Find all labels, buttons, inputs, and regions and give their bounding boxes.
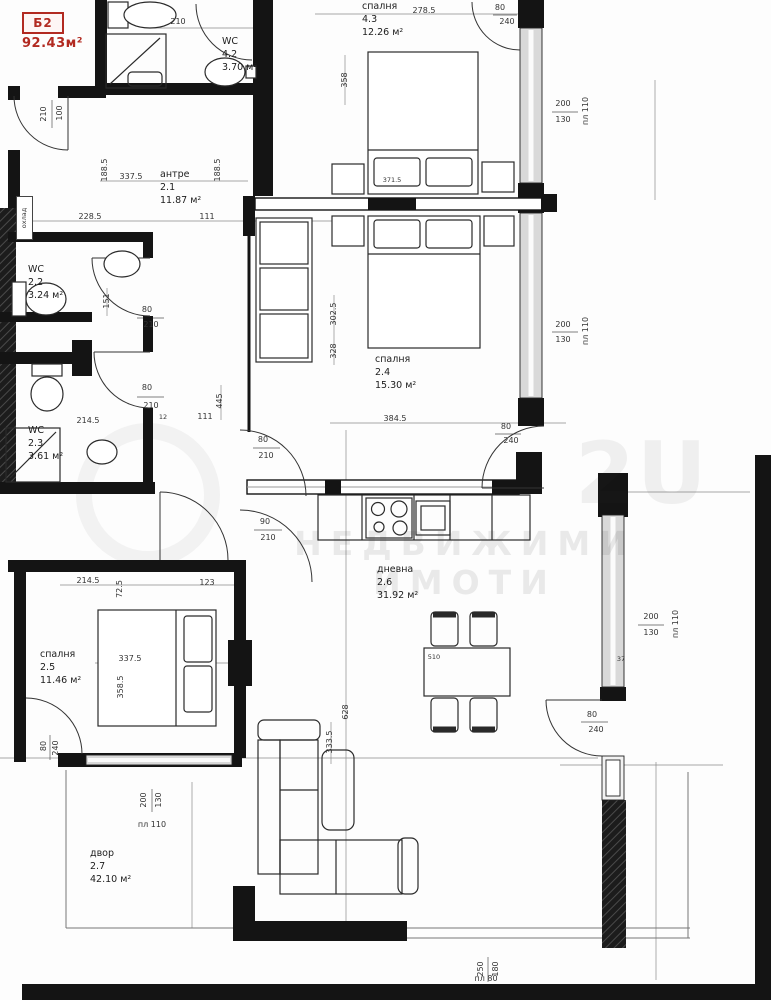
dim-label: 210 bbox=[143, 402, 158, 410]
dim-label: 12 bbox=[159, 413, 167, 421]
dim-label: 210 bbox=[258, 452, 273, 460]
dim-label: 302.5 bbox=[330, 303, 338, 326]
dim-label: 337.5 bbox=[120, 173, 143, 181]
dim-label: 200 bbox=[555, 100, 570, 108]
dim-label: 80 bbox=[587, 711, 597, 719]
dim-label: 240 bbox=[499, 18, 514, 26]
room-area: 31.92 м² bbox=[377, 589, 418, 602]
room-number: 2.7 bbox=[90, 860, 131, 873]
room-area: 3.70 м² bbox=[222, 61, 257, 74]
room-number: 2.6 bbox=[377, 576, 418, 589]
dim-label: 80 bbox=[142, 384, 152, 392]
dim-label: 72.5 bbox=[116, 580, 124, 598]
room-name: антре bbox=[160, 168, 201, 181]
dim-label: 151 bbox=[103, 293, 111, 308]
room-area: 11.46 м² bbox=[40, 674, 81, 687]
dim-label: 228.5 bbox=[79, 213, 102, 221]
dim-label: 328 bbox=[330, 343, 338, 358]
room-number: 2.5 bbox=[40, 661, 81, 674]
room-label-wc42: WC 4.2 3.70 м² bbox=[222, 35, 257, 74]
dim-label: 188.5 bbox=[214, 159, 222, 182]
dim-label: пл 80 bbox=[474, 975, 497, 983]
dim-label: 210 bbox=[170, 18, 185, 26]
room-label-bedroom24: спалня 2.4 15.30 м² bbox=[375, 353, 416, 392]
dim-label: 123 bbox=[199, 579, 214, 587]
room-number: 2.1 bbox=[160, 181, 201, 194]
watermark-text: НЕДВИЖИМИ ИМОТИ bbox=[230, 524, 700, 602]
dim-label: 80 bbox=[258, 436, 268, 444]
room-name: спалня bbox=[362, 0, 403, 13]
room-area: 15.30 м² bbox=[375, 379, 416, 392]
floorplan-page: Б2 92.43м² охлад 2U НЕДВИЖИМИ ИМОТИ WC 4… bbox=[0, 0, 771, 1000]
dim-label: 240 bbox=[52, 740, 60, 755]
room-label-wc22: WC 2.2 3.24 м² bbox=[28, 263, 63, 302]
dim-label: 200 bbox=[555, 321, 570, 329]
room-number: 4.2 bbox=[222, 48, 257, 61]
dim-label: 130 bbox=[555, 116, 570, 124]
cooler-niche: охлад bbox=[16, 196, 33, 240]
room-area: 3.24 м² bbox=[28, 289, 63, 302]
dim-label: 358 bbox=[341, 72, 349, 87]
dim-label: 200 bbox=[140, 792, 148, 807]
room-area: 42.10 м² bbox=[90, 873, 131, 886]
room-area: 3.61 м² bbox=[28, 450, 63, 463]
room-number: 2.4 bbox=[375, 366, 416, 379]
room-label-bedroom43: спалня 4.3 12.26 м² bbox=[362, 0, 403, 39]
room-name: WC bbox=[222, 35, 257, 48]
dim-label: 628 bbox=[342, 704, 350, 719]
dim-label: 210 bbox=[143, 321, 158, 329]
dim-label: 80 bbox=[40, 741, 48, 751]
room-number: 2.3 bbox=[28, 437, 63, 450]
dim-label: пл 110 bbox=[582, 97, 590, 125]
room-name: WC bbox=[28, 424, 63, 437]
room-label-antre21: антре 2.1 11.87 м² bbox=[160, 168, 201, 207]
room-label-yard27: двор 2.7 42.10 м² bbox=[90, 847, 131, 886]
room-area: 12.26 м² bbox=[362, 26, 403, 39]
dim-label: 214.5 bbox=[77, 417, 100, 425]
dim-label: 100 bbox=[56, 105, 64, 120]
dim-label: пл 110 bbox=[672, 610, 680, 638]
room-label-living26: дневна 2.6 31.92 м² bbox=[377, 563, 418, 602]
dim-label: 210 bbox=[40, 106, 48, 121]
dimension-separators bbox=[50, 15, 664, 982]
dim-label: 278.5 bbox=[413, 7, 436, 15]
dim-label: 80 bbox=[495, 4, 505, 12]
dim-label: 130 bbox=[643, 629, 658, 637]
watermark-logo: 2U bbox=[575, 424, 709, 524]
dim-label: 384.5 bbox=[384, 415, 407, 423]
dim-label: 445 bbox=[216, 393, 224, 408]
unit-code: Б2 bbox=[22, 12, 64, 34]
dim-label: 371.5 bbox=[383, 176, 402, 184]
room-area: 11.87 м² bbox=[160, 194, 201, 207]
dim-label: 333.5 bbox=[326, 731, 334, 754]
room-name: спалня bbox=[40, 648, 81, 661]
room-number: 2.2 bbox=[28, 276, 63, 289]
dim-label: 210 bbox=[260, 534, 275, 542]
room-label-wc23: WC 2.3 3.61 м² bbox=[28, 424, 63, 463]
room-label-bedroom25: спалня 2.5 11.46 м² bbox=[40, 648, 81, 687]
dim-label: пл 110 bbox=[138, 821, 166, 829]
dim-label: 358.5 bbox=[117, 676, 125, 699]
unit-area: 92.43м² bbox=[22, 36, 83, 51]
dim-label: 111 bbox=[199, 213, 214, 221]
dim-label: 111 bbox=[197, 413, 212, 421]
dim-label: 80 bbox=[142, 306, 152, 314]
dim-label: 337.5 bbox=[119, 655, 142, 663]
dim-label: 130 bbox=[155, 792, 163, 807]
room-name: спалня bbox=[375, 353, 416, 366]
dim-label: 214.5 bbox=[77, 577, 100, 585]
room-name: двор bbox=[90, 847, 131, 860]
dim-label: 90 bbox=[260, 518, 270, 526]
unit-tag: Б2 92.43м² bbox=[22, 12, 83, 51]
room-name: дневна bbox=[377, 563, 418, 576]
dim-label: 80 bbox=[501, 423, 511, 431]
dim-label: 510 bbox=[428, 653, 440, 661]
dim-label: 200 bbox=[643, 613, 658, 621]
dim-label: 240 bbox=[588, 726, 603, 734]
cooler-label: охлад bbox=[21, 208, 29, 228]
dim-label: пл 110 bbox=[582, 317, 590, 345]
dim-label: 37 bbox=[617, 655, 625, 663]
dim-label: 130 bbox=[555, 336, 570, 344]
dim-label: 240 bbox=[503, 437, 518, 445]
dim-label: 188.5 bbox=[101, 159, 109, 182]
room-number: 4.3 bbox=[362, 13, 403, 26]
room-name: WC bbox=[28, 263, 63, 276]
